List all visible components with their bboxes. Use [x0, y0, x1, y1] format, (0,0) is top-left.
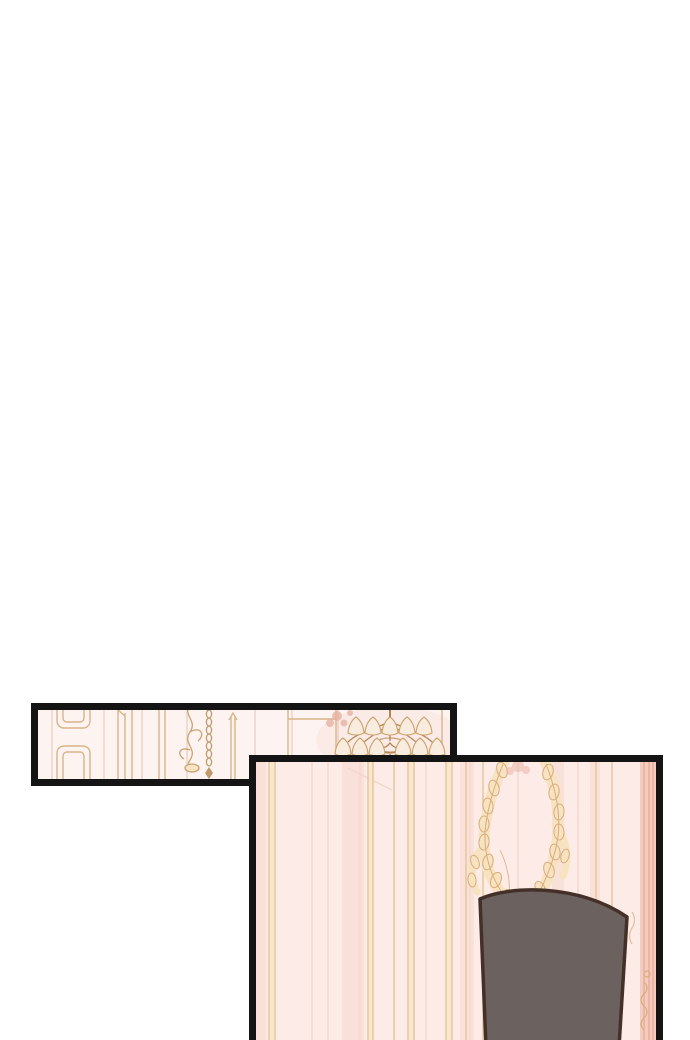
webtoon-page: { "meta": { "kind": "webtoon-comic-page-…: [0, 0, 690, 1040]
chair-back: [480, 890, 627, 1040]
panel-bottom-large: [249, 755, 663, 1040]
comic-page: [0, 0, 690, 1040]
panel-bottom-artwork: [256, 762, 656, 1040]
